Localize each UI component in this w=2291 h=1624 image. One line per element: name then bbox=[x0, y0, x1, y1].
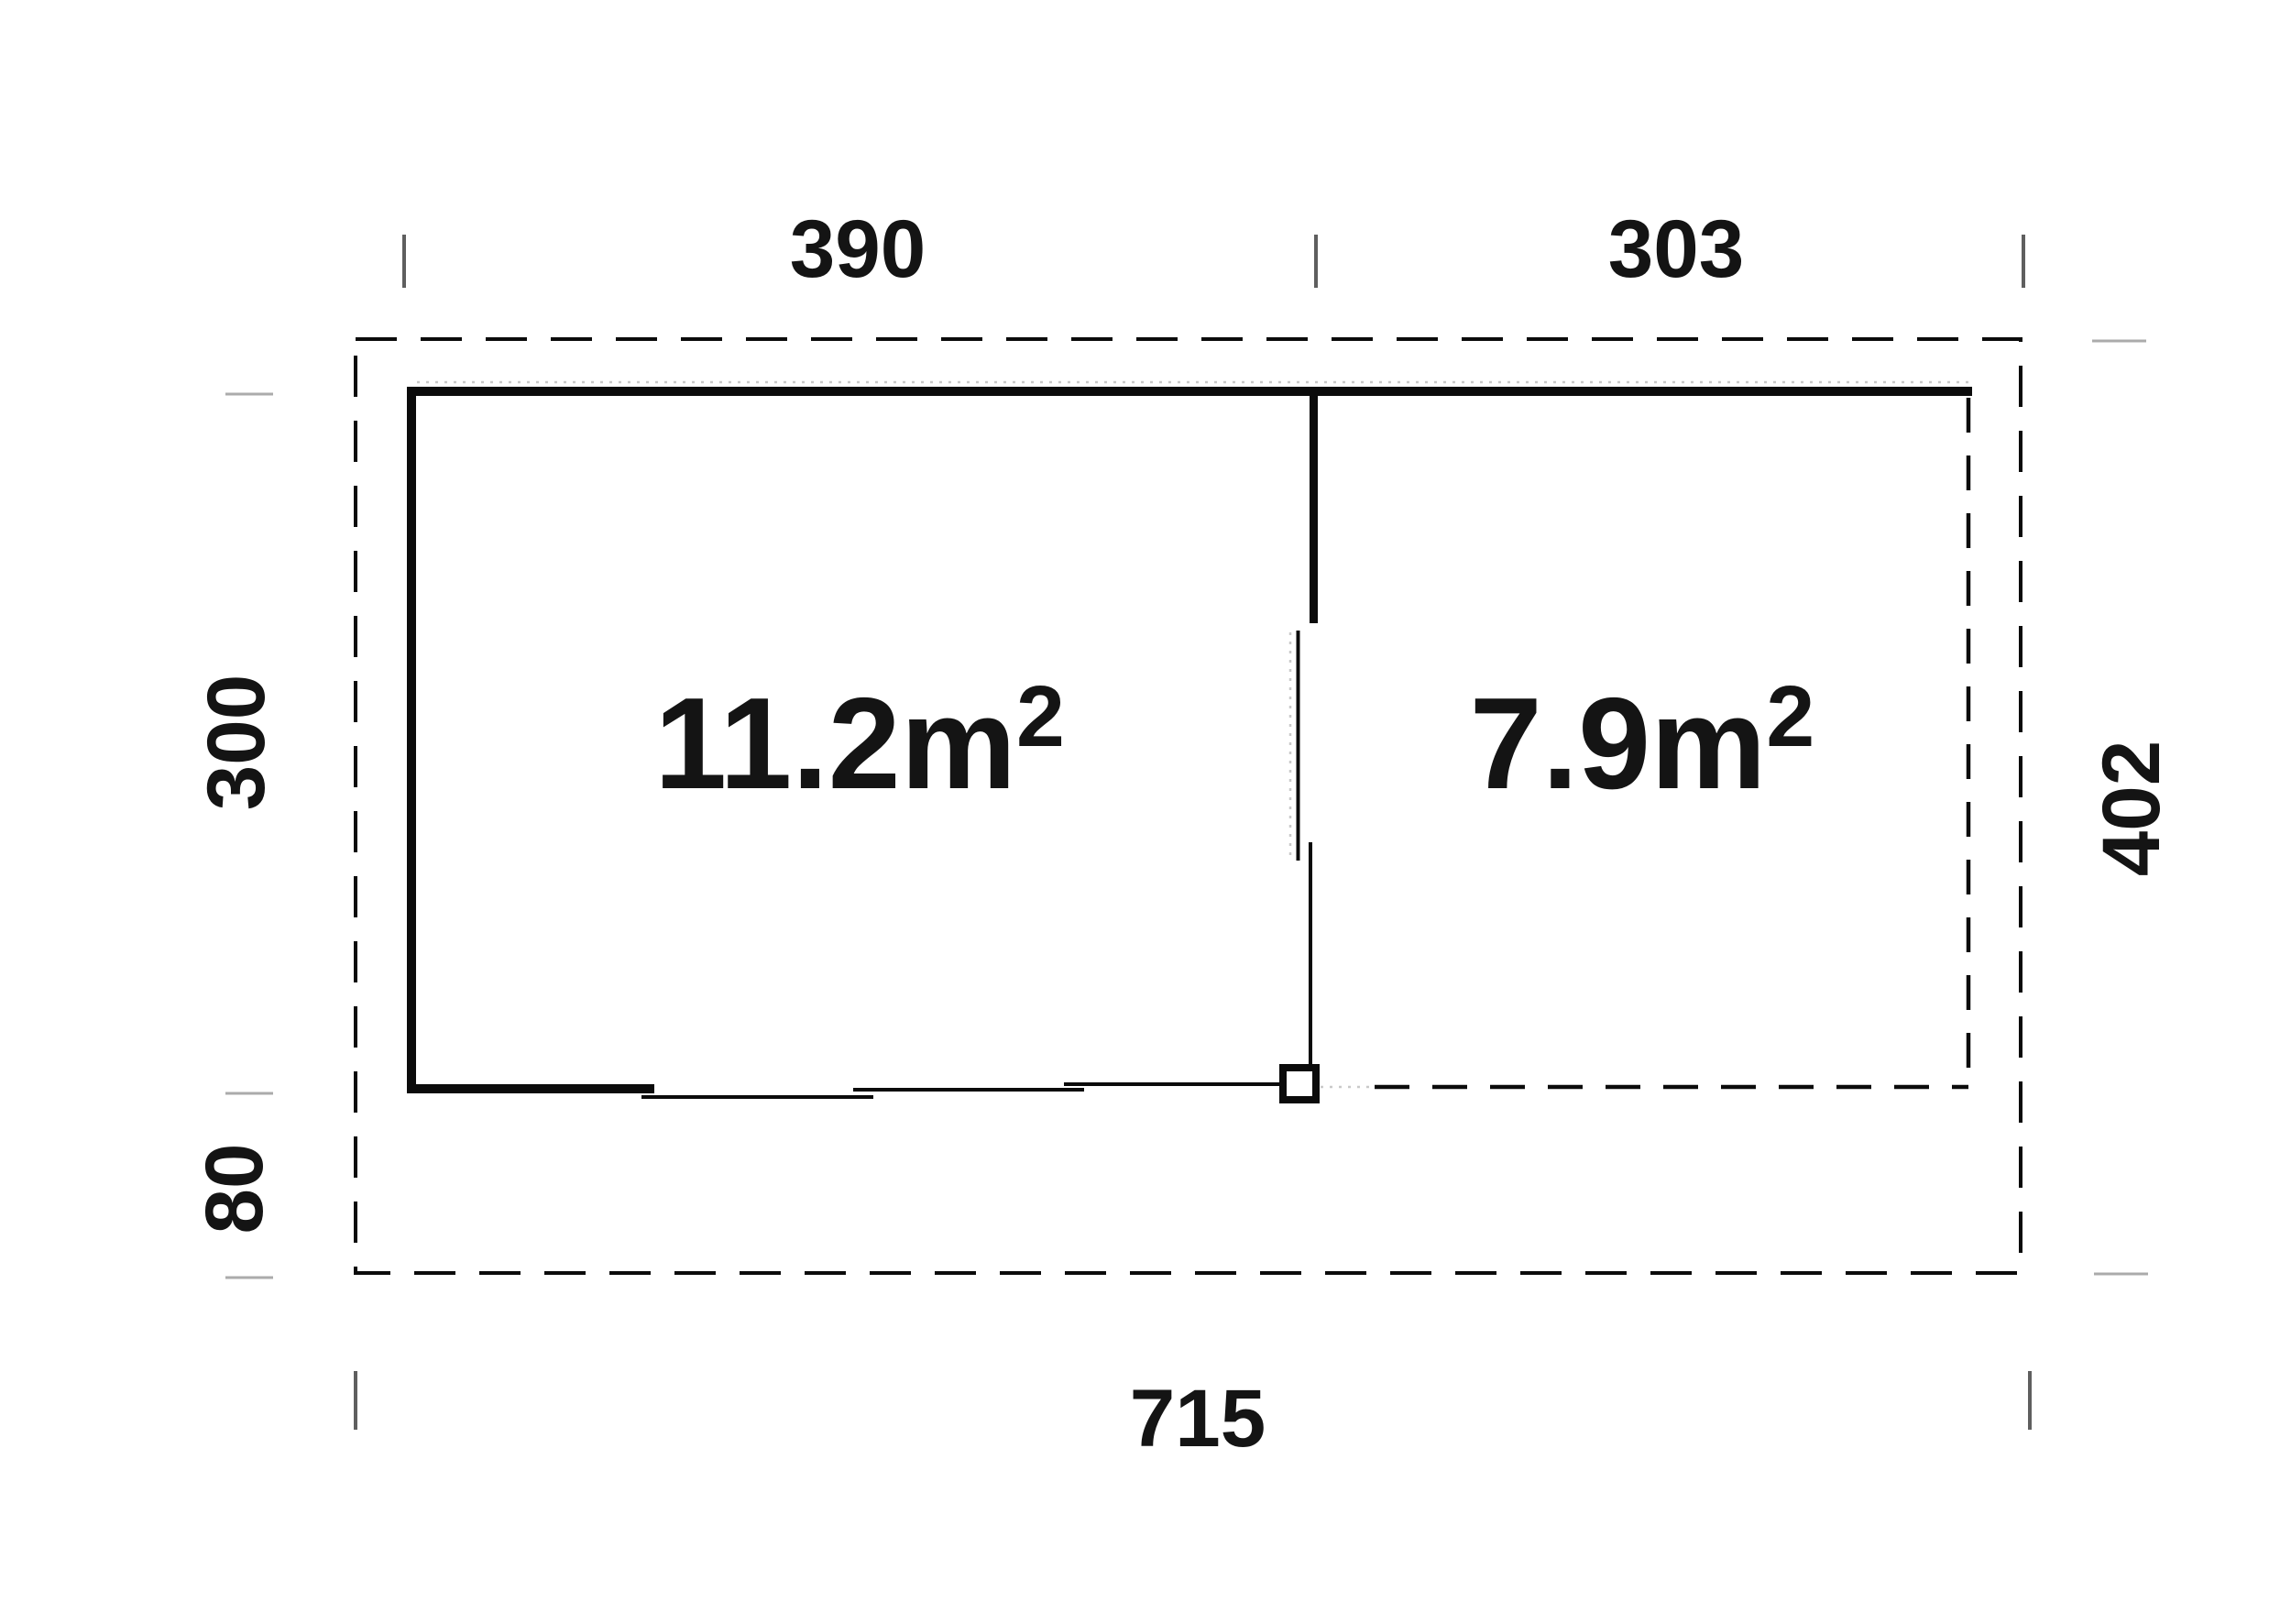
floor-plan-page: 390 303 715 300 80 402 11.2m2 7.9m2 bbox=[0, 0, 2291, 1619]
dim-top-right-label: 303 bbox=[1608, 203, 1745, 294]
dim-right-height-label: 402 bbox=[2085, 741, 2176, 877]
room-left-area-superscript: 2 bbox=[1016, 668, 1065, 765]
room-left-area-value: 11.2m bbox=[654, 671, 1016, 817]
door-post-square bbox=[1283, 1068, 1316, 1100]
door-post bbox=[1283, 1068, 1316, 1100]
sliding-door-partition bbox=[1299, 631, 1311, 1068]
dim-bottom-label: 715 bbox=[1130, 1372, 1266, 1464]
room-right-area-value: 7.9m bbox=[1470, 671, 1767, 817]
roof-outline-rect bbox=[356, 339, 2021, 1273]
room-labels: 11.2m2 7.9m2 bbox=[654, 668, 1814, 817]
floor-plan-canvas: 390 303 715 300 80 402 11.2m2 7.9m2 bbox=[0, 0, 2291, 1619]
room-right-area-label: 7.9m2 bbox=[1470, 668, 1815, 817]
dimension-ticks-horizontal bbox=[225, 341, 2148, 1278]
sliding-door-bottom bbox=[641, 1084, 1283, 1097]
dim-left-offset-label: 80 bbox=[188, 1144, 280, 1234]
dimension-ticks-vertical bbox=[356, 235, 2030, 1430]
room-right-area-superscript: 2 bbox=[1766, 668, 1814, 765]
room-left-area-label: 11.2m2 bbox=[654, 668, 1065, 817]
dim-top-left-label: 390 bbox=[790, 203, 926, 294]
dim-left-height-label: 300 bbox=[190, 675, 281, 811]
roof-outline bbox=[356, 339, 2021, 1273]
